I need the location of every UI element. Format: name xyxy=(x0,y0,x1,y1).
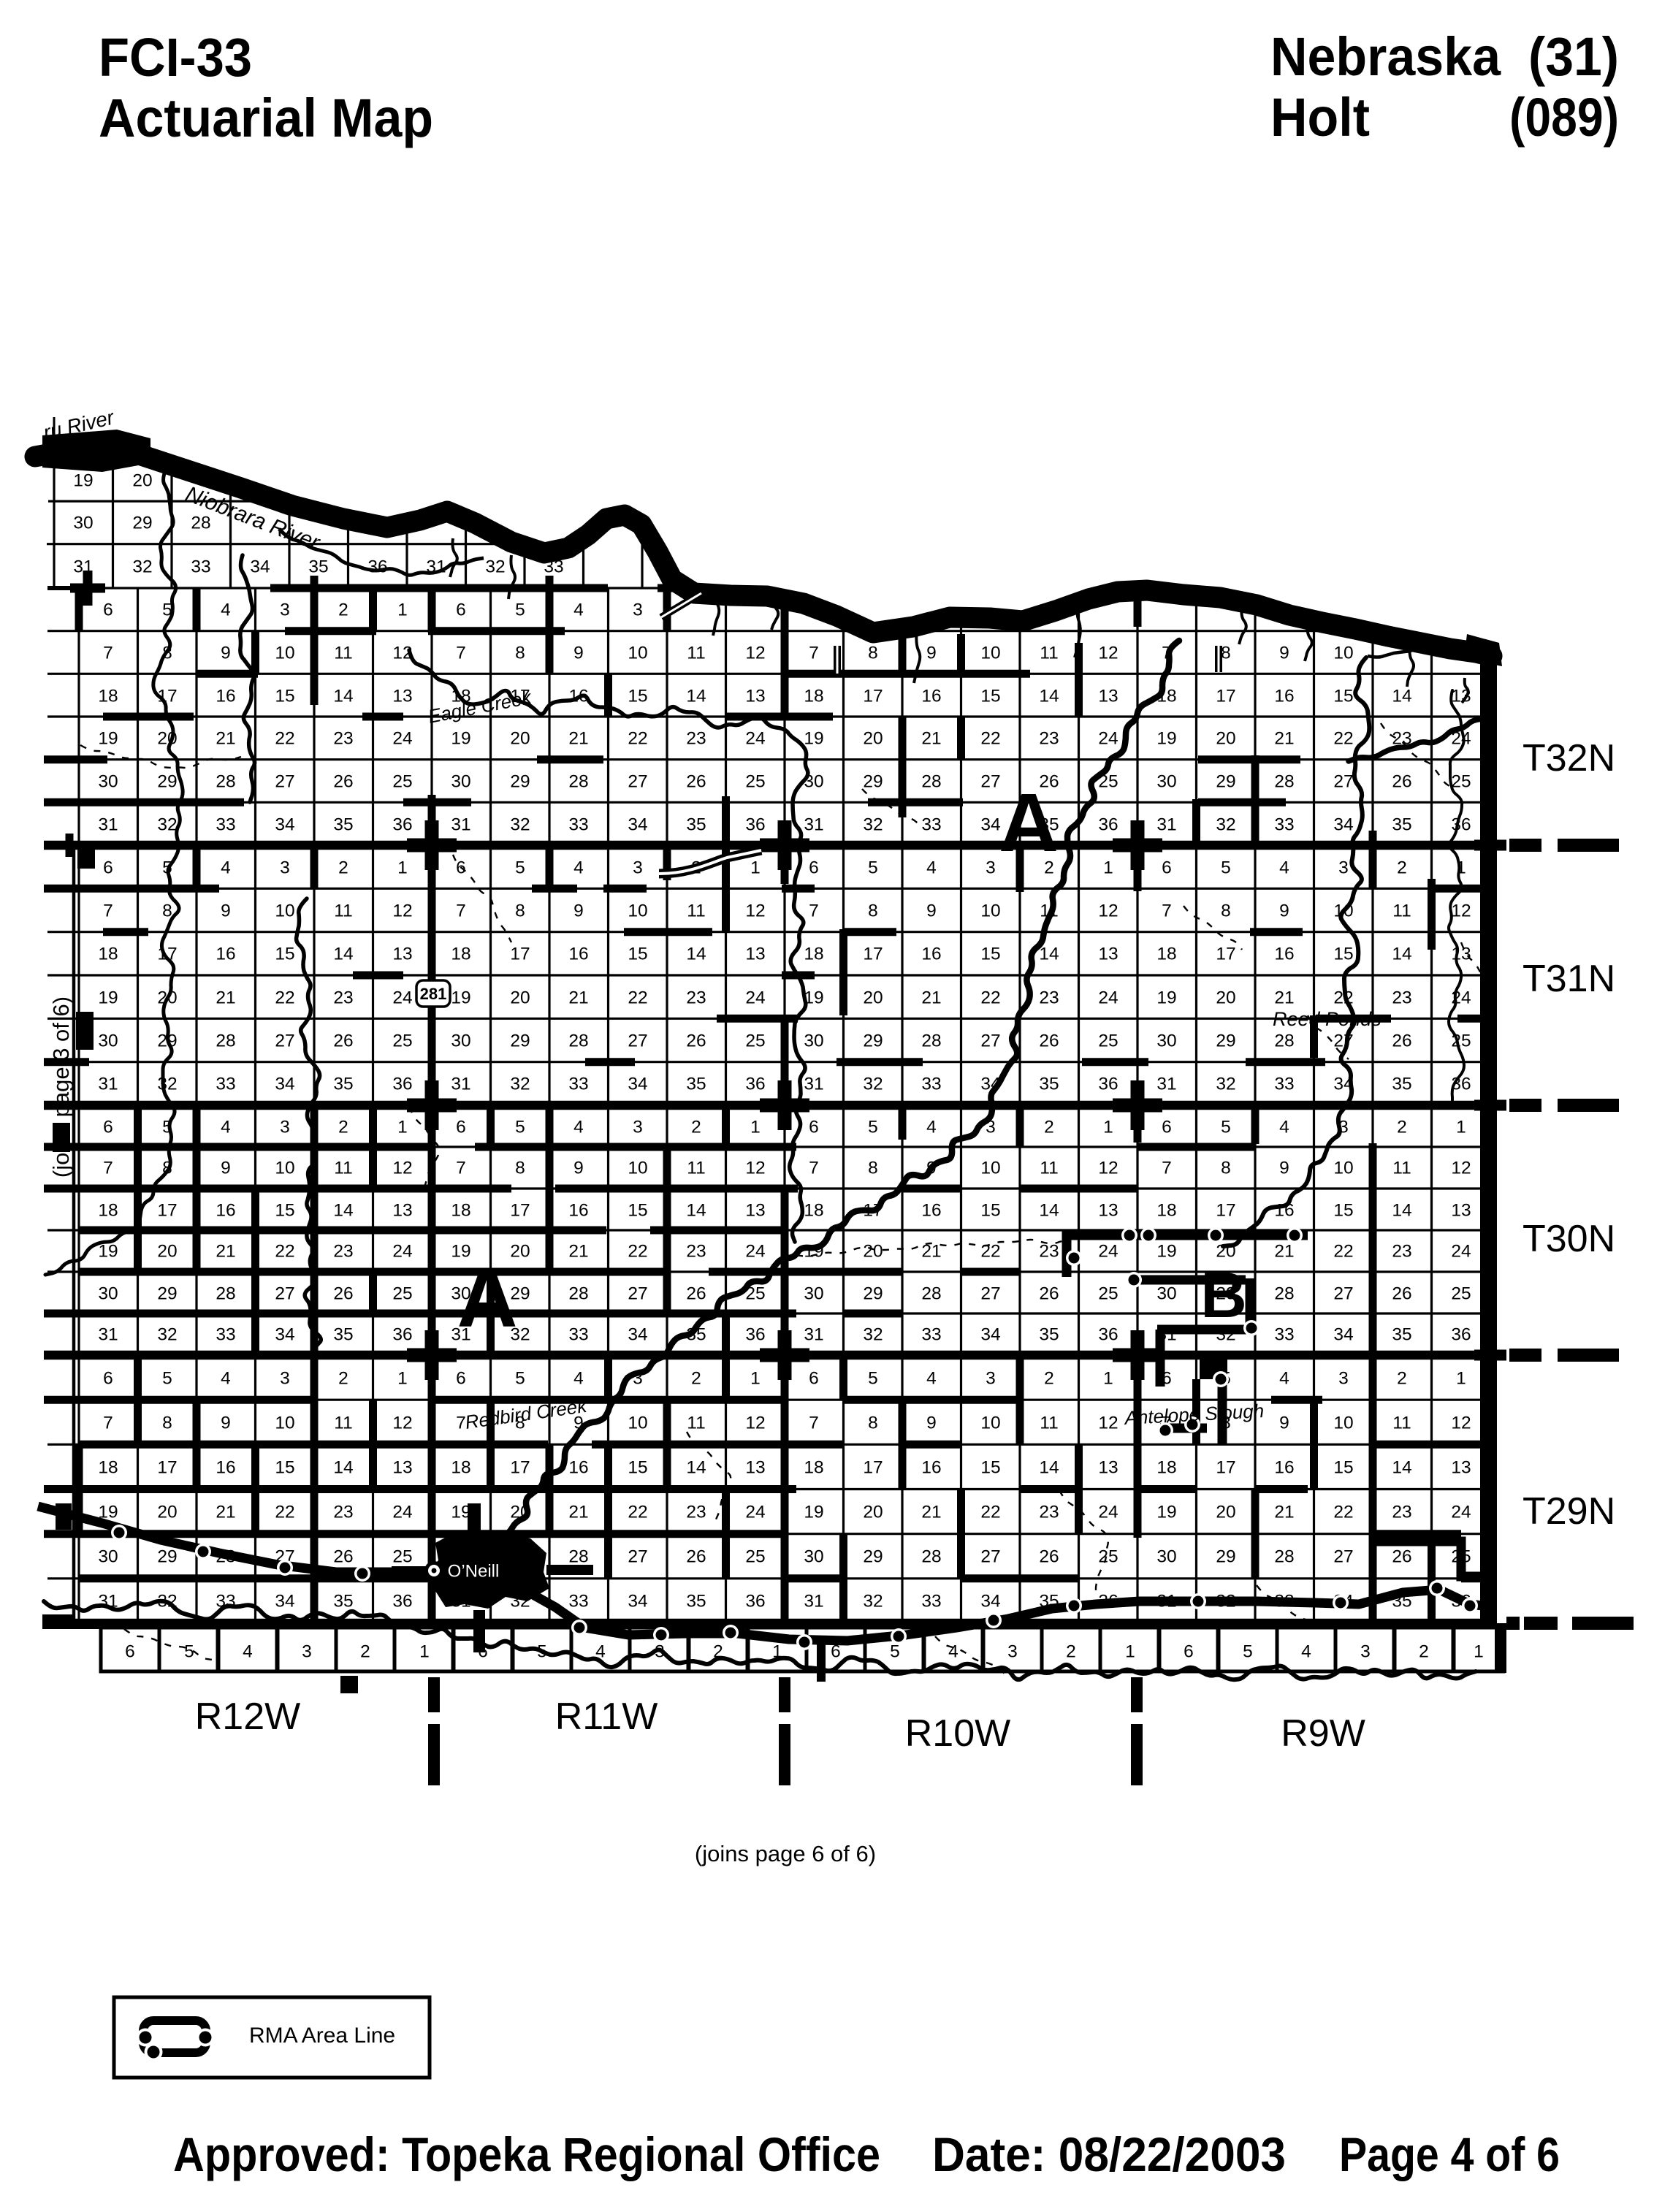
svg-text:32: 32 xyxy=(157,815,177,834)
svg-text:1: 1 xyxy=(397,858,408,877)
svg-text:10: 10 xyxy=(275,901,294,920)
svg-text:32: 32 xyxy=(157,1074,177,1094)
svg-text:25: 25 xyxy=(1451,1031,1471,1050)
svg-text:18: 18 xyxy=(451,1457,470,1477)
svg-text:15: 15 xyxy=(980,1457,1000,1477)
svg-text:2: 2 xyxy=(360,1641,370,1661)
svg-text:29: 29 xyxy=(863,1031,883,1050)
svg-text:4: 4 xyxy=(948,1641,959,1661)
svg-text:31: 31 xyxy=(804,1074,823,1094)
svg-text:30: 30 xyxy=(804,1284,823,1303)
svg-text:26: 26 xyxy=(333,1547,353,1566)
svg-text:18: 18 xyxy=(1156,944,1176,964)
svg-text:34: 34 xyxy=(628,815,647,834)
svg-text:30: 30 xyxy=(98,771,118,791)
svg-text:19: 19 xyxy=(804,728,823,748)
svg-text:12: 12 xyxy=(745,1158,765,1178)
svg-text:12: 12 xyxy=(1451,1413,1471,1433)
svg-text:33: 33 xyxy=(568,1591,588,1611)
svg-text:11: 11 xyxy=(1040,901,1058,920)
svg-text:20: 20 xyxy=(157,988,177,1007)
svg-text:35: 35 xyxy=(333,1074,353,1094)
svg-text:33: 33 xyxy=(1274,1324,1294,1344)
svg-text:34: 34 xyxy=(1333,1324,1353,1344)
svg-text:11: 11 xyxy=(334,643,352,663)
svg-text:35: 35 xyxy=(333,1324,353,1344)
svg-text:7: 7 xyxy=(103,643,113,663)
svg-text:Date: 08/22/2003: Date: 08/22/2003 xyxy=(932,2127,1286,2181)
svg-text:2: 2 xyxy=(338,1368,348,1388)
svg-text:Page 4 of 6: Page 4 of 6 xyxy=(1339,2127,1560,2181)
svg-text:19: 19 xyxy=(1156,988,1176,1007)
svg-text:11: 11 xyxy=(1392,1158,1411,1178)
svg-text:9: 9 xyxy=(221,643,231,663)
svg-text:26: 26 xyxy=(1039,1547,1059,1566)
svg-text:22: 22 xyxy=(980,728,1000,748)
svg-text:11: 11 xyxy=(334,1413,352,1433)
svg-text:17: 17 xyxy=(510,1457,530,1477)
svg-text:25: 25 xyxy=(1451,771,1471,791)
svg-text:28: 28 xyxy=(191,513,210,533)
svg-text:9: 9 xyxy=(221,901,231,920)
svg-text:24: 24 xyxy=(392,1241,412,1261)
svg-text:1: 1 xyxy=(750,1117,761,1137)
svg-text:19: 19 xyxy=(73,470,93,490)
svg-text:21: 21 xyxy=(1274,1502,1294,1522)
svg-text:7: 7 xyxy=(456,643,466,663)
svg-text:8: 8 xyxy=(515,643,525,663)
svg-text:36: 36 xyxy=(1098,1324,1118,1344)
svg-text:15: 15 xyxy=(275,944,294,964)
svg-text:31: 31 xyxy=(1156,815,1176,834)
svg-text:9: 9 xyxy=(573,901,584,920)
svg-text:1: 1 xyxy=(1456,1368,1466,1388)
svg-text:20: 20 xyxy=(157,728,177,748)
svg-text:4: 4 xyxy=(926,1117,937,1137)
svg-text:2: 2 xyxy=(1044,1368,1054,1388)
svg-text:R10W: R10W xyxy=(905,1712,1010,1755)
svg-text:27: 27 xyxy=(628,1284,647,1303)
svg-text:33: 33 xyxy=(568,1324,588,1344)
svg-text:4: 4 xyxy=(573,858,584,877)
svg-text:2: 2 xyxy=(338,1117,348,1137)
svg-text:32: 32 xyxy=(1216,815,1235,834)
svg-text:24: 24 xyxy=(745,728,765,748)
svg-text:14: 14 xyxy=(1392,1457,1411,1477)
svg-text:34: 34 xyxy=(628,1591,647,1611)
svg-text:18: 18 xyxy=(1156,1200,1176,1220)
svg-text:33: 33 xyxy=(1274,1074,1294,1094)
svg-text:20: 20 xyxy=(132,470,152,490)
svg-text:13: 13 xyxy=(745,944,765,964)
svg-text:23: 23 xyxy=(686,1502,706,1522)
svg-text:15: 15 xyxy=(1333,944,1353,964)
svg-text:34: 34 xyxy=(275,1591,294,1611)
svg-text:36: 36 xyxy=(392,1324,412,1344)
svg-text:29: 29 xyxy=(863,1284,883,1303)
svg-text:14: 14 xyxy=(1039,944,1059,964)
svg-text:B: B xyxy=(1200,1259,1247,1331)
svg-text:5: 5 xyxy=(868,858,878,877)
svg-text:3: 3 xyxy=(655,1641,665,1661)
svg-text:22: 22 xyxy=(1333,1502,1353,1522)
svg-text:27: 27 xyxy=(628,1031,647,1050)
svg-text:10: 10 xyxy=(628,1413,647,1433)
svg-text:25: 25 xyxy=(745,1031,765,1050)
svg-text:35: 35 xyxy=(1392,1074,1411,1094)
svg-text:2: 2 xyxy=(1397,858,1407,877)
svg-text:35: 35 xyxy=(1039,1324,1059,1344)
svg-text:4: 4 xyxy=(573,1368,584,1388)
svg-text:11: 11 xyxy=(334,901,352,920)
svg-text:16: 16 xyxy=(1274,686,1294,706)
svg-text:8: 8 xyxy=(162,901,172,920)
svg-text:24: 24 xyxy=(1098,1241,1118,1261)
svg-text:36: 36 xyxy=(745,815,765,834)
svg-text:14: 14 xyxy=(1392,1200,1411,1220)
svg-text:15: 15 xyxy=(1333,1200,1353,1220)
svg-text:17: 17 xyxy=(510,944,530,964)
svg-text:18: 18 xyxy=(451,944,470,964)
svg-text:14: 14 xyxy=(1039,686,1059,706)
svg-text:27: 27 xyxy=(980,1284,1000,1303)
svg-text:16: 16 xyxy=(216,944,235,964)
svg-text:3: 3 xyxy=(986,1117,996,1137)
svg-text:30: 30 xyxy=(451,771,470,791)
svg-text:22: 22 xyxy=(275,988,294,1007)
svg-text:29: 29 xyxy=(510,771,530,791)
svg-text:4: 4 xyxy=(926,858,937,877)
svg-text:25: 25 xyxy=(1451,1284,1471,1303)
svg-text:31: 31 xyxy=(73,557,93,576)
svg-text:15: 15 xyxy=(980,1200,1000,1220)
svg-text:7: 7 xyxy=(809,1158,819,1178)
svg-text:31: 31 xyxy=(1156,1074,1176,1094)
svg-text:28: 28 xyxy=(921,771,941,791)
svg-text:17: 17 xyxy=(1216,944,1235,964)
svg-text:2: 2 xyxy=(1066,1641,1076,1661)
svg-text:4: 4 xyxy=(221,1368,231,1388)
svg-text:5: 5 xyxy=(162,600,172,619)
svg-text:27: 27 xyxy=(275,1031,294,1050)
svg-text:26: 26 xyxy=(1392,1284,1411,1303)
svg-text:12: 12 xyxy=(745,901,765,920)
svg-text:6: 6 xyxy=(103,858,113,877)
svg-text:19: 19 xyxy=(804,988,823,1007)
svg-text:10: 10 xyxy=(980,901,1000,920)
svg-text:29: 29 xyxy=(863,771,883,791)
svg-text:17: 17 xyxy=(157,1457,177,1477)
svg-text:35: 35 xyxy=(1392,815,1411,834)
svg-text:(089): (089) xyxy=(1509,87,1619,148)
svg-text:17: 17 xyxy=(863,686,883,706)
svg-text:9: 9 xyxy=(926,1413,937,1433)
svg-text:26: 26 xyxy=(1392,771,1411,791)
svg-text:26: 26 xyxy=(686,771,706,791)
svg-text:1: 1 xyxy=(397,600,408,619)
svg-text:8: 8 xyxy=(515,901,525,920)
svg-text:26: 26 xyxy=(1392,1031,1411,1050)
svg-text:A: A xyxy=(457,1251,517,1345)
svg-text:18: 18 xyxy=(98,944,118,964)
svg-text:11: 11 xyxy=(1392,901,1411,920)
svg-text:1: 1 xyxy=(750,858,761,877)
svg-text:19: 19 xyxy=(1156,1241,1176,1261)
svg-text:26: 26 xyxy=(333,1284,353,1303)
svg-text:29: 29 xyxy=(157,1284,177,1303)
svg-text:R12W: R12W xyxy=(195,1696,300,1738)
svg-text:9: 9 xyxy=(221,1413,231,1433)
svg-text:20: 20 xyxy=(157,1241,177,1261)
svg-text:15: 15 xyxy=(628,944,647,964)
svg-text:29: 29 xyxy=(1216,1031,1235,1050)
svg-text:9: 9 xyxy=(1279,1158,1289,1178)
svg-text:9: 9 xyxy=(926,901,937,920)
svg-text:29: 29 xyxy=(132,513,152,533)
svg-text:13: 13 xyxy=(745,686,765,706)
svg-text:28: 28 xyxy=(216,771,235,791)
svg-text:7: 7 xyxy=(809,1413,819,1433)
svg-text:9: 9 xyxy=(221,1158,231,1178)
svg-text:26: 26 xyxy=(1392,1547,1411,1566)
svg-text:21: 21 xyxy=(921,728,941,748)
svg-text:26: 26 xyxy=(333,771,353,791)
svg-text:27: 27 xyxy=(980,1547,1000,1566)
svg-text:3: 3 xyxy=(280,1117,290,1137)
svg-text:20: 20 xyxy=(510,988,530,1007)
svg-text:33: 33 xyxy=(216,1074,235,1094)
svg-text:30: 30 xyxy=(1156,1031,1176,1050)
svg-text:12: 12 xyxy=(1098,1413,1118,1433)
svg-text:4: 4 xyxy=(573,1117,584,1137)
svg-text:10: 10 xyxy=(275,1413,294,1433)
svg-text:18: 18 xyxy=(1156,1457,1176,1477)
svg-text:Actuarial Map: Actuarial Map xyxy=(99,88,433,148)
svg-text:28: 28 xyxy=(568,1284,588,1303)
svg-text:8: 8 xyxy=(868,643,878,663)
svg-text:32: 32 xyxy=(1216,1074,1235,1094)
svg-text:23: 23 xyxy=(1392,1241,1411,1261)
svg-text:2: 2 xyxy=(1397,1117,1407,1137)
svg-text:13: 13 xyxy=(1451,1200,1471,1220)
svg-text:14: 14 xyxy=(1039,1200,1059,1220)
svg-text:29: 29 xyxy=(157,771,177,791)
svg-text:12: 12 xyxy=(745,643,765,663)
svg-text:36: 36 xyxy=(745,1324,765,1344)
svg-text:14: 14 xyxy=(686,944,706,964)
svg-text:34: 34 xyxy=(980,1591,1000,1611)
svg-text:11: 11 xyxy=(334,1158,352,1178)
svg-text:(joins page 3 of 6): (joins page 3 of 6) xyxy=(48,996,74,1178)
svg-text:15: 15 xyxy=(628,686,647,706)
svg-text:17: 17 xyxy=(157,686,177,706)
svg-text:O’Neill: O’Neill xyxy=(448,1561,500,1581)
svg-text:27: 27 xyxy=(1333,771,1353,791)
svg-text:28: 28 xyxy=(568,1547,588,1566)
svg-text:7: 7 xyxy=(456,901,466,920)
svg-text:13: 13 xyxy=(1098,686,1118,706)
svg-text:22: 22 xyxy=(275,1502,294,1522)
svg-text:8: 8 xyxy=(868,1158,878,1178)
svg-text:21: 21 xyxy=(568,728,588,748)
svg-text:6: 6 xyxy=(456,600,466,619)
svg-text:T30N: T30N xyxy=(1522,1218,1615,1260)
svg-text:16: 16 xyxy=(568,1457,588,1477)
svg-text:21: 21 xyxy=(921,988,941,1007)
svg-text:19: 19 xyxy=(451,728,470,748)
svg-text:7: 7 xyxy=(1162,901,1172,920)
svg-text:23: 23 xyxy=(1039,1502,1059,1522)
svg-text:3: 3 xyxy=(1338,1117,1349,1137)
svg-text:26: 26 xyxy=(1039,1031,1059,1050)
svg-text:30: 30 xyxy=(1156,771,1176,791)
svg-text:13: 13 xyxy=(1098,1200,1118,1220)
svg-text:T29N: T29N xyxy=(1522,1490,1615,1533)
svg-text:19: 19 xyxy=(1156,1502,1176,1522)
svg-text:14: 14 xyxy=(1392,686,1411,706)
svg-text:23: 23 xyxy=(1392,728,1411,748)
svg-text:36: 36 xyxy=(392,1591,412,1611)
svg-text:25: 25 xyxy=(392,1284,412,1303)
svg-text:30: 30 xyxy=(98,1547,118,1566)
svg-text:17: 17 xyxy=(1216,686,1235,706)
svg-text:16: 16 xyxy=(216,686,235,706)
svg-text:13: 13 xyxy=(392,686,412,706)
svg-text:33: 33 xyxy=(216,1324,235,1344)
svg-text:1: 1 xyxy=(1125,1641,1135,1661)
svg-text:9: 9 xyxy=(573,643,584,663)
svg-text:12: 12 xyxy=(1451,901,1471,920)
svg-text:24: 24 xyxy=(1451,1502,1471,1522)
svg-text:16: 16 xyxy=(921,686,941,706)
svg-text:3: 3 xyxy=(280,858,290,877)
svg-text:31: 31 xyxy=(804,815,823,834)
svg-text:23: 23 xyxy=(333,988,353,1007)
svg-text:13: 13 xyxy=(1451,686,1471,706)
svg-text:25: 25 xyxy=(392,771,412,791)
svg-text:15: 15 xyxy=(628,1200,647,1220)
svg-text:7: 7 xyxy=(1162,643,1172,663)
svg-text:8: 8 xyxy=(162,643,172,663)
svg-text:3: 3 xyxy=(633,1117,643,1137)
svg-text:33: 33 xyxy=(921,1591,941,1611)
svg-text:3: 3 xyxy=(986,858,996,877)
svg-text:23: 23 xyxy=(686,988,706,1007)
svg-text:22: 22 xyxy=(275,728,294,748)
svg-text:1: 1 xyxy=(1103,1368,1113,1388)
svg-text:21: 21 xyxy=(216,988,235,1007)
svg-text:22: 22 xyxy=(628,1502,647,1522)
svg-text:36: 36 xyxy=(745,1074,765,1094)
svg-text:11: 11 xyxy=(1392,1413,1411,1433)
svg-text:2: 2 xyxy=(691,1368,701,1388)
svg-text:6: 6 xyxy=(1162,858,1172,877)
svg-text:9: 9 xyxy=(1279,1413,1289,1433)
svg-text:20: 20 xyxy=(1216,988,1235,1007)
svg-text:30: 30 xyxy=(451,1031,470,1050)
svg-text:32: 32 xyxy=(863,815,883,834)
svg-text:25: 25 xyxy=(1098,1284,1118,1303)
svg-text:23: 23 xyxy=(686,728,706,748)
svg-text:1: 1 xyxy=(1456,858,1466,877)
svg-text:31: 31 xyxy=(804,1591,823,1611)
svg-text:30: 30 xyxy=(804,771,823,791)
svg-text:22: 22 xyxy=(628,988,647,1007)
svg-text:7: 7 xyxy=(103,901,113,920)
svg-text:8: 8 xyxy=(162,1158,172,1178)
svg-text:6: 6 xyxy=(103,600,113,619)
svg-text:16: 16 xyxy=(568,944,588,964)
svg-text:7: 7 xyxy=(809,643,819,663)
svg-text:28: 28 xyxy=(568,1031,588,1050)
svg-text:8: 8 xyxy=(868,1413,878,1433)
svg-text:5: 5 xyxy=(868,1368,878,1388)
svg-text:31: 31 xyxy=(98,1074,118,1094)
svg-text:16: 16 xyxy=(921,1200,941,1220)
svg-text:4: 4 xyxy=(1279,1368,1289,1388)
svg-text:14: 14 xyxy=(686,1200,706,1220)
svg-text:26: 26 xyxy=(333,1031,353,1050)
svg-text:22: 22 xyxy=(628,728,647,748)
svg-text:22: 22 xyxy=(628,1241,647,1261)
svg-text:18: 18 xyxy=(804,1200,823,1220)
svg-text:25: 25 xyxy=(392,1547,412,1566)
svg-text:1: 1 xyxy=(772,1641,782,1661)
svg-text:12: 12 xyxy=(1098,643,1118,663)
svg-text:2: 2 xyxy=(1397,1368,1407,1388)
svg-text:Holt: Holt xyxy=(1270,87,1370,148)
svg-text:10: 10 xyxy=(1333,643,1353,663)
svg-text:(joins page 6 of 6): (joins page 6 of 6) xyxy=(695,1841,876,1866)
svg-text:18: 18 xyxy=(804,1457,823,1477)
svg-text:21: 21 xyxy=(216,1502,235,1522)
svg-text:1: 1 xyxy=(397,1368,408,1388)
svg-text:5: 5 xyxy=(1243,1641,1253,1661)
svg-text:28: 28 xyxy=(216,1284,235,1303)
svg-text:22: 22 xyxy=(1333,728,1353,748)
svg-text:5: 5 xyxy=(162,1368,172,1388)
svg-text:16: 16 xyxy=(1274,1457,1294,1477)
svg-text:21: 21 xyxy=(568,1502,588,1522)
svg-text:15: 15 xyxy=(1333,1457,1353,1477)
svg-text:33: 33 xyxy=(921,815,941,834)
svg-text:13: 13 xyxy=(1098,944,1118,964)
svg-text:11: 11 xyxy=(687,1158,705,1178)
svg-text:21: 21 xyxy=(568,988,588,1007)
svg-text:8: 8 xyxy=(515,1158,525,1178)
svg-text:15: 15 xyxy=(1333,686,1353,706)
svg-text:7: 7 xyxy=(456,1158,466,1178)
svg-text:4: 4 xyxy=(926,1368,937,1388)
svg-text:22: 22 xyxy=(1333,1241,1353,1261)
svg-text:20: 20 xyxy=(1216,728,1235,748)
svg-text:17: 17 xyxy=(1216,1457,1235,1477)
svg-text:18: 18 xyxy=(804,686,823,706)
svg-text:34: 34 xyxy=(980,1074,1000,1094)
svg-text:10: 10 xyxy=(275,643,294,663)
svg-text:24: 24 xyxy=(745,988,765,1007)
svg-text:28: 28 xyxy=(1274,1031,1294,1050)
svg-text:16: 16 xyxy=(568,686,588,706)
svg-text:27: 27 xyxy=(628,1547,647,1566)
svg-text:35: 35 xyxy=(686,1324,706,1344)
svg-text:3: 3 xyxy=(1338,1368,1349,1388)
svg-text:36: 36 xyxy=(1451,815,1471,834)
svg-text:17: 17 xyxy=(510,1200,530,1220)
svg-text:4: 4 xyxy=(221,600,231,619)
svg-text:32: 32 xyxy=(157,1324,177,1344)
svg-text:36: 36 xyxy=(392,815,412,834)
